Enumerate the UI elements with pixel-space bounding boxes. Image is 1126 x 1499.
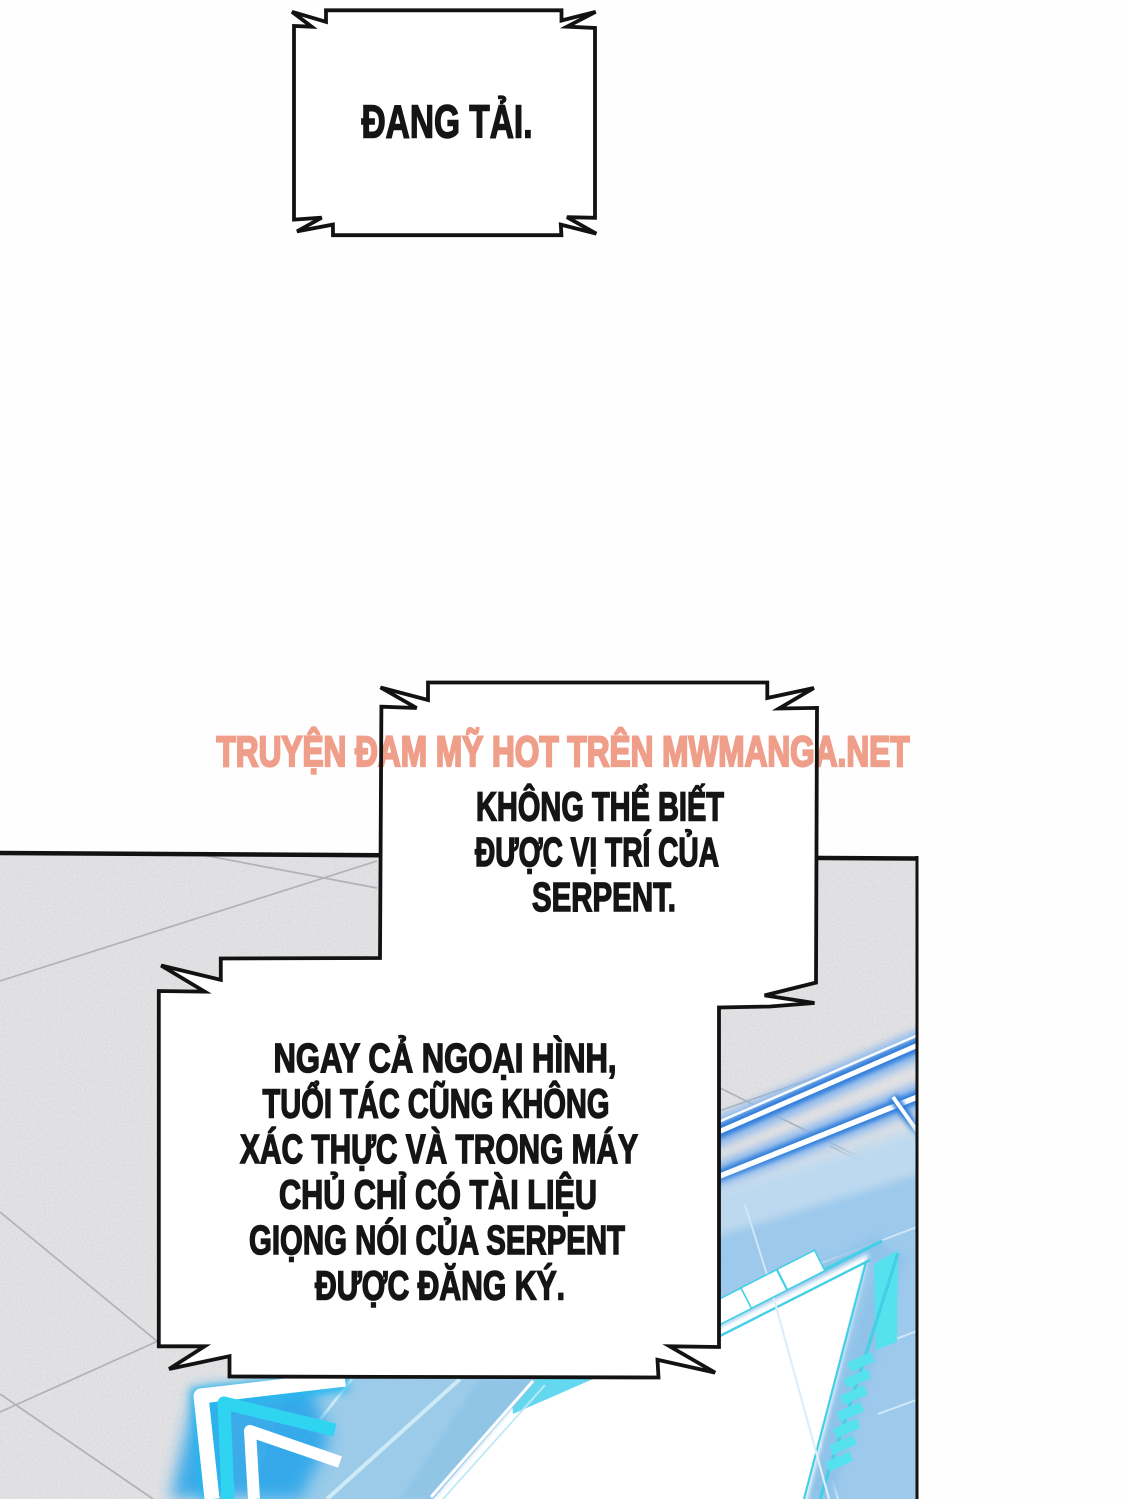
svg-text:CHỦ CHỈ CÓ TÀI LIỆU: CHỦ CHỈ CÓ TÀI LIỆU — [279, 1172, 597, 1218]
svg-text:XÁC THỰC VÀ TRONG MÁY: XÁC THỰC VÀ TRONG MÁY — [240, 1126, 638, 1172]
svg-text:KHÔNG THỂ BIẾT: KHÔNG THỂ BIẾT — [476, 783, 724, 830]
svg-text:ĐƯỢC ĐĂNG KÝ.: ĐƯỢC ĐĂNG KÝ. — [315, 1263, 565, 1309]
svg-text:NGAY CẢ NGOẠI HÌNH,: NGAY CẢ NGOẠI HÌNH, — [274, 1035, 617, 1081]
svg-text:TRUYỆN ĐAM MỸ HOT TRÊN MWMANGA: TRUYỆN ĐAM MỸ HOT TRÊN MWMANGA.NET — [217, 727, 910, 776]
svg-text:SERPENT.: SERPENT. — [532, 874, 676, 920]
svg-text:TUỔI TÁC CŨNG KHÔNG: TUỔI TÁC CŨNG KHÔNG — [263, 1080, 610, 1127]
svg-text:ĐƯỢC VỊ TRÍ CỦA: ĐƯỢC VỊ TRÍ CỦA — [475, 829, 719, 875]
svg-text:ĐANG TẢI.: ĐANG TẢI. — [362, 96, 533, 148]
svg-text:GIỌNG NÓI CỦA SERPENT: GIỌNG NÓI CỦA SERPENT — [249, 1217, 625, 1263]
